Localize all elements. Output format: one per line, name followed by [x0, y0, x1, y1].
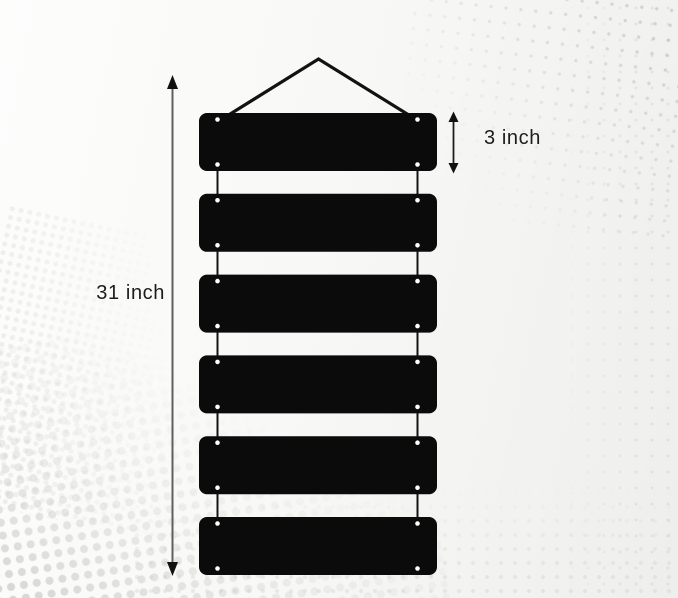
arrowhead-down-icon	[449, 163, 459, 174]
screw-hole	[215, 162, 220, 167]
screw-hole	[215, 279, 220, 284]
screw-hole	[415, 521, 420, 526]
plank	[199, 517, 437, 575]
screw-hole	[415, 324, 420, 329]
product-dimension-image: 31 inch 3 inch	[0, 0, 678, 598]
screw-hole	[215, 117, 220, 122]
arrowhead-down-icon	[167, 562, 178, 576]
overall-height-label: 31 inch	[55, 282, 165, 305]
screw-hole	[215, 243, 220, 248]
arrowhead-up-icon	[167, 75, 178, 89]
screw-hole	[415, 405, 420, 410]
screw-hole	[415, 485, 420, 490]
screw-hole	[415, 279, 420, 284]
screw-hole	[215, 485, 220, 490]
plank	[199, 194, 437, 252]
screw-hole	[415, 117, 420, 122]
screw-hole	[415, 566, 420, 571]
screw-hole	[215, 405, 220, 410]
screw-hole	[215, 440, 220, 445]
screw-hole	[215, 360, 220, 365]
plank	[199, 113, 437, 171]
arrowhead-up-icon	[449, 112, 459, 123]
screw-hole	[415, 198, 420, 203]
screw-hole	[215, 566, 220, 571]
screw-hole	[415, 360, 420, 365]
screw-hole	[415, 162, 420, 167]
plank	[199, 436, 437, 494]
plank-height-label: 3 inch	[484, 127, 541, 150]
screw-hole	[215, 324, 220, 329]
overall-height-dimension-arrow	[167, 75, 178, 576]
screw-hole	[215, 198, 220, 203]
plank	[199, 275, 437, 333]
plank-height-dimension-arrow	[449, 112, 459, 174]
planks	[199, 113, 437, 575]
hanging-rope	[227, 59, 412, 117]
screw-hole	[215, 521, 220, 526]
plank	[199, 355, 437, 413]
plank-holes	[215, 117, 420, 571]
screw-hole	[415, 440, 420, 445]
screw-hole	[415, 243, 420, 248]
